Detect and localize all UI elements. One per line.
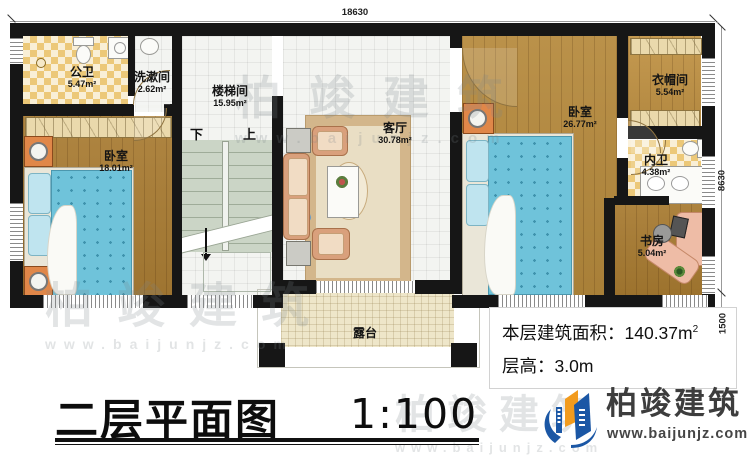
logo-mark [541, 383, 601, 449]
stair-down-label: 下 [190, 124, 203, 143]
floor-area-line: 本层建筑面积：140.37m2 [502, 320, 698, 345]
room-label-shufang: 书房 5.04m² [620, 235, 684, 258]
floor-height-line: 层高：3.0m [502, 353, 593, 378]
floor-height-value: 3.0m [555, 356, 594, 376]
room-area: 15.95m² [198, 98, 262, 108]
wall [272, 96, 283, 295]
floor-area-value: 140.37m [625, 323, 693, 343]
pillow [28, 173, 51, 214]
room-area: 26.77m² [548, 119, 612, 129]
room-label-gongwei: 公卫 5.47m² [50, 66, 114, 89]
wall [415, 280, 462, 294]
logo-name: 柏竣建筑 [606, 388, 742, 420]
light-fixture-icon [36, 58, 46, 68]
toilet-bowl-icon [76, 45, 91, 64]
basin-icon [140, 38, 159, 55]
room-name: 内卫 [624, 154, 688, 167]
terrace-pillar [259, 343, 285, 367]
room-label-lutai: 露台 [333, 327, 397, 340]
title-underline-thick [55, 438, 479, 442]
room-name: 卧室 [84, 150, 148, 163]
stair-arrow [205, 228, 207, 254]
nightstand [24, 136, 53, 167]
room-area: 5.04m² [620, 248, 684, 258]
title-underline-thin [55, 444, 479, 445]
room-name: 公卫 [50, 66, 114, 79]
room-label-yimaojian: 衣帽间 5.54m² [638, 74, 702, 97]
dimension-top-value: 18630 [325, 7, 385, 18]
room-label-woshi-left: 卧室 18.01m² [84, 150, 148, 173]
floor-area-label: 本层建筑面积： [502, 323, 625, 343]
wall [450, 23, 462, 48]
window [702, 256, 715, 294]
room-area: 2.62m² [120, 84, 184, 94]
window [10, 203, 23, 261]
wall [172, 104, 182, 308]
room-name: 露台 [333, 327, 397, 340]
room-name: 卧室 [548, 106, 612, 119]
stair-landing-outline [203, 252, 271, 292]
room-name: 衣帽间 [638, 74, 702, 87]
logo-building-icon [541, 383, 601, 449]
pillow [466, 140, 489, 182]
pillow [466, 184, 489, 226]
room-label-keting: 客厅 30.78m² [363, 122, 427, 145]
room-label-xishujian: 洗漱间 2.62m² [120, 71, 184, 94]
side-table [286, 128, 311, 153]
stair-up-label: 上 [243, 124, 256, 143]
wall [272, 280, 316, 294]
plant-icon [674, 266, 685, 277]
room-label-loutijian: 楼梯间 15.95m² [198, 85, 262, 108]
window [10, 38, 23, 64]
window [187, 295, 253, 308]
dimension-line-top [10, 21, 715, 22]
side-table [286, 241, 311, 266]
room-area: 18.01m² [84, 163, 148, 173]
room-area: 5.47m² [50, 79, 114, 89]
wall [10, 23, 23, 308]
floorplan-canvas: 18630 8630 1500 下 上 [0, 0, 750, 458]
dimension-right-terrace: 1500 [718, 306, 729, 342]
room-name: 书房 [620, 235, 684, 248]
floor-area-sup: 2 [693, 324, 699, 335]
room-name: 客厅 [363, 122, 427, 135]
room-label-woshi-right: 卧室 26.77m² [548, 106, 612, 129]
sofa-cushion [288, 198, 308, 236]
wall [614, 196, 669, 205]
room-area: 30.78m² [363, 135, 427, 145]
room-area: 5.54m² [638, 87, 702, 97]
room-name: 楼梯间 [198, 85, 262, 98]
wall [450, 112, 462, 281]
wall [10, 104, 134, 116]
wall [617, 23, 628, 118]
armchair-cushion [318, 233, 344, 255]
coffee-table [327, 166, 359, 218]
room-area: 4.38m² [624, 167, 688, 177]
closet-hatch-top [630, 38, 702, 55]
window [702, 156, 715, 208]
window [43, 295, 143, 308]
room-label-neiwei: 内卫 4.38m² [624, 154, 688, 177]
wall [604, 198, 615, 308]
floor-height-label: 层高： [502, 356, 555, 376]
nightstand [463, 103, 494, 134]
dimension-right-main: 8630 [717, 161, 728, 201]
terrace-pillar [451, 343, 477, 367]
armchair-cushion [317, 131, 343, 151]
info-panel: 本层建筑面积：140.37m2 层高：3.0m [489, 307, 737, 389]
logo-url: www.baijunjz.com [607, 426, 748, 442]
plan-scale: 1:100 [350, 390, 478, 438]
window [702, 58, 715, 106]
room-name: 洗漱间 [120, 71, 184, 84]
sofa-cushion [288, 158, 308, 196]
wall [10, 23, 715, 36]
sliding-door [316, 281, 415, 293]
